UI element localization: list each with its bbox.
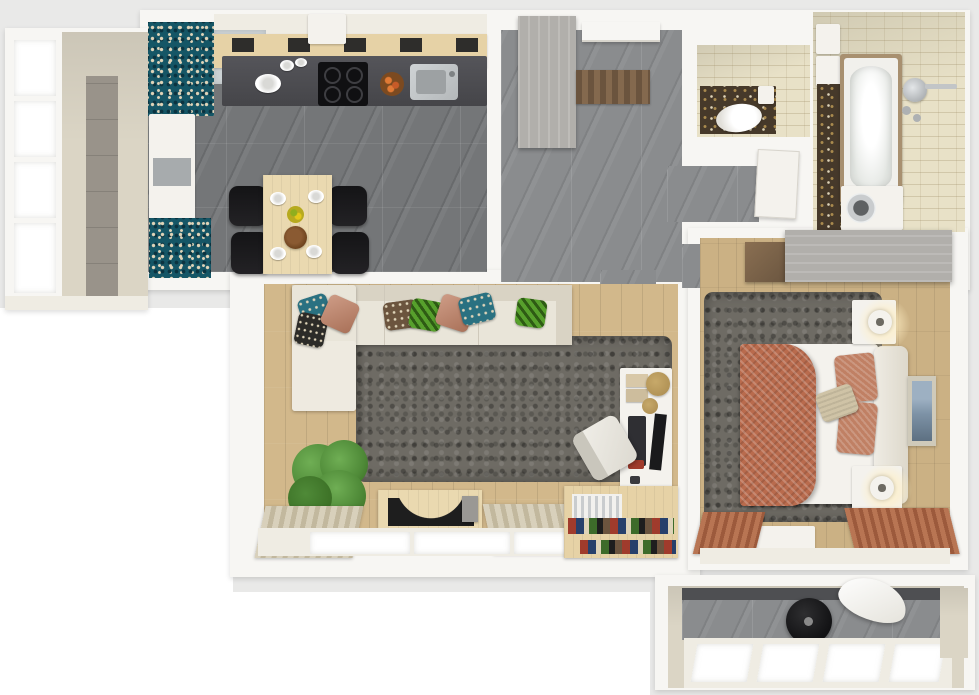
desk-lamp-gold [646, 372, 670, 396]
balcony-window-pane [14, 40, 56, 96]
bathroom-shelf [816, 56, 840, 86]
hallway-wardrobe [518, 16, 576, 148]
shower-handle [913, 114, 921, 122]
sink-bowl [416, 70, 446, 94]
burner [324, 86, 341, 103]
loggia-window-pane [691, 644, 754, 682]
closet-floor [667, 166, 759, 222]
cabinet-front [153, 158, 191, 186]
bedroom-window-sill [700, 548, 950, 564]
sofa-armrest-right [556, 285, 572, 345]
desk-small-item [630, 476, 640, 484]
bedroom-wardrobe [785, 230, 952, 282]
bathtub [844, 58, 898, 200]
shower-head [903, 78, 927, 102]
balcony-window-pane [14, 162, 56, 218]
table-plate [270, 192, 286, 205]
bathtub-basin [850, 66, 892, 190]
cooktop [318, 62, 368, 106]
plate-stack [255, 74, 281, 93]
range-hood [308, 14, 346, 44]
salad-bowl [287, 206, 304, 223]
bookshelf-books [580, 540, 676, 554]
bedside-lamp [870, 476, 894, 500]
bed-blanket [740, 344, 816, 506]
table-plate [308, 190, 324, 203]
wall-art [908, 376, 936, 446]
faucet [449, 71, 455, 77]
kitchen-sink [410, 64, 458, 100]
living-window-pane [414, 532, 510, 554]
kitchen-tall-cabinet [149, 114, 195, 220]
entry-door [582, 22, 660, 42]
desk-lamp-gold-small [642, 398, 658, 414]
bedroom-cabinet-dark [745, 242, 787, 282]
burner [346, 86, 363, 103]
fruit-bowl [380, 72, 404, 96]
kitchen-cabinet-slots [232, 38, 482, 52]
loggia-window-pane [757, 644, 820, 682]
shower-handle [902, 106, 911, 115]
wc-shelf [758, 86, 774, 104]
small-plate [295, 58, 307, 67]
dining-chair [331, 232, 369, 274]
bread-bowl [284, 226, 307, 249]
chaise-seat [292, 341, 356, 411]
burner [346, 67, 363, 84]
door-mat [576, 70, 650, 104]
bathroom-mosaic-strip [817, 84, 841, 232]
dining-chair [229, 186, 267, 226]
dining-chair [329, 186, 367, 226]
bedroom-bench [753, 526, 815, 550]
small-plate [280, 60, 294, 71]
bedside-lamp [868, 310, 892, 334]
loggia-window-pane [823, 644, 886, 682]
floor-plan-canvas [0, 0, 979, 695]
table-plate [270, 247, 286, 260]
burner [324, 67, 341, 84]
desk-shelf-box [626, 374, 648, 387]
bathroom-shelf [816, 24, 840, 54]
shower-arm [925, 84, 957, 89]
closet-door [754, 149, 800, 219]
pouf-button [804, 617, 813, 626]
wall-art-image [912, 381, 932, 441]
table-plate [306, 245, 322, 258]
photo-frame [462, 496, 478, 522]
washer-door [846, 193, 876, 223]
balcony-window-pane [14, 101, 56, 157]
dining-table [263, 175, 332, 274]
balcony-sill [5, 296, 148, 310]
loggia-right-wall [940, 588, 968, 658]
kitchen-accent-wall-top [148, 22, 214, 116]
sofa-pillow-green [514, 297, 548, 329]
balcony-window-pane [14, 223, 56, 293]
loggia-window-pane [889, 644, 946, 682]
balcony-floor [86, 76, 118, 300]
living-window-pane [310, 532, 410, 554]
bookshelf-books [568, 518, 674, 534]
washing-machine [841, 186, 903, 230]
hallway-doorway-bedroom [682, 244, 700, 288]
kitchen-accent-wall-bottom [149, 218, 211, 278]
